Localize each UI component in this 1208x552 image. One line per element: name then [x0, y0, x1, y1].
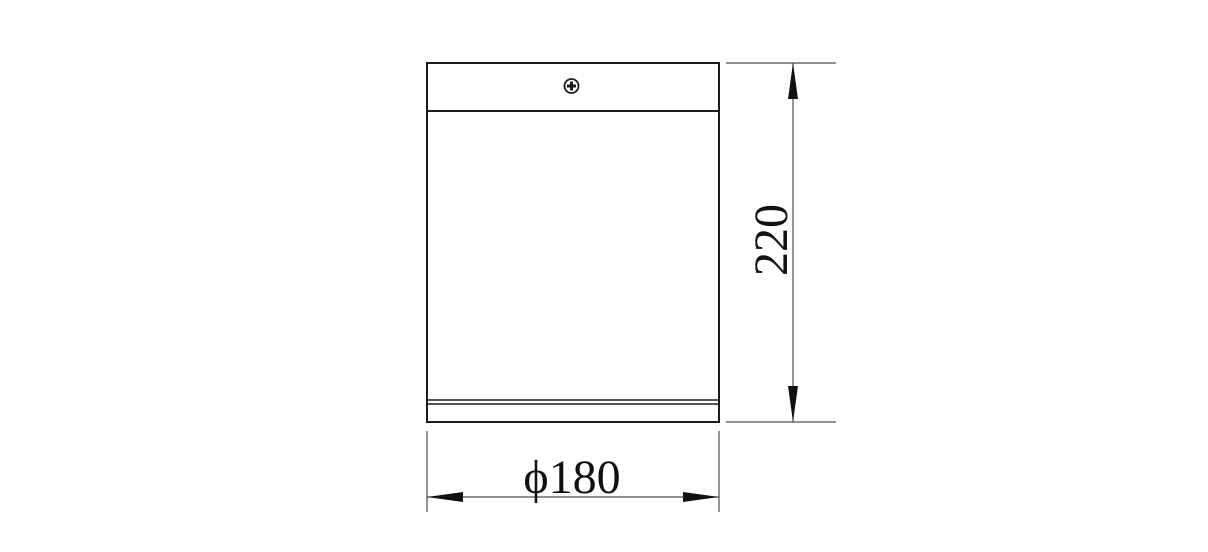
arrowhead-left-icon: [427, 492, 463, 502]
fixture-body-outline: [427, 63, 719, 422]
height-dimension: 220: [726, 63, 836, 422]
arrowhead-up-icon: [788, 63, 798, 99]
arrowhead-down-icon: [788, 386, 798, 422]
technical-drawing-canvas: 220 ϕ180: [0, 0, 1208, 552]
height-dimension-label: 220: [745, 204, 798, 276]
diameter-dimension-label: ϕ180: [523, 451, 620, 504]
arrowhead-right-icon: [683, 492, 719, 502]
fixture-body: [427, 63, 719, 422]
phillips-screw-icon: [565, 79, 579, 93]
luminaire-elevation-drawing: 220 ϕ180: [0, 0, 1208, 552]
diameter-dimension: ϕ180: [427, 431, 719, 512]
